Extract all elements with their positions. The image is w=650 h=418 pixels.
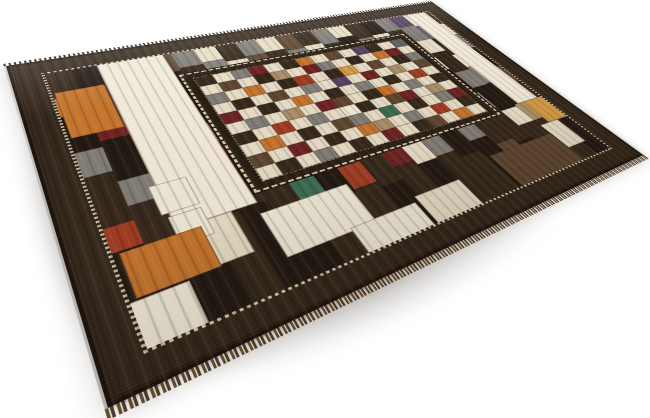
photo-background [0, 0, 650, 418]
ivory-pool-center [260, 184, 377, 258]
rug-field [41, 11, 612, 354]
amber-block-right [523, 96, 568, 122]
rug [6, 2, 643, 408]
